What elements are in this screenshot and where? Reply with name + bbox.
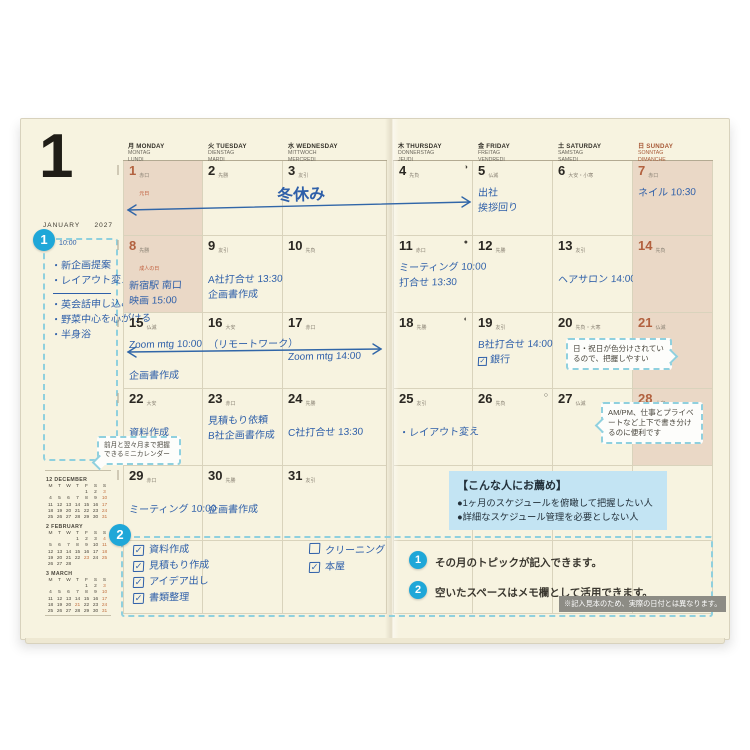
week-number-mark — [117, 393, 119, 403]
rokuyo-label: 大安 — [225, 325, 235, 331]
moon-phase-icon: ● — [464, 239, 468, 246]
sidebar-caption: JANUARY 2027 — [43, 222, 113, 229]
memo-item: ✓本屋 — [309, 559, 386, 576]
rokuyo-label: 大安・小寒 — [568, 173, 593, 179]
weekday-header-saturday: 土 SATURDAYSAMSTAGSAMEDI — [553, 139, 633, 161]
rokuyo-label: 先負 — [495, 401, 505, 407]
legend-badge-2: 2 — [409, 581, 427, 599]
rokuyo-label: 友引 — [305, 478, 315, 484]
checkbox-checked: ✓ — [133, 561, 145, 572]
day-number: 6 — [558, 164, 565, 177]
handwritten-entry: ネイル 10:30 — [638, 185, 710, 201]
memo-item: ✓資料作成 — [133, 542, 210, 559]
rokuyo-label: 大安 — [146, 401, 156, 407]
rokuyo-label: 先負 — [655, 248, 665, 254]
day-cell-4: 4先負◑ — [393, 161, 473, 236]
memo-item: ✓書類整理 — [133, 590, 210, 607]
day-cell-31: 31友引 — [283, 466, 387, 541]
recommend-item: ●1ヶ月のスケジュールを俯瞰して把握したい人 — [457, 496, 659, 510]
legend-text-1: その月のトピックが記入できます。 — [435, 555, 602, 570]
moon-phase-icon: ○ — [544, 392, 548, 399]
planner-page-photo: 1 JANUARY 2027 10:00 ・新企画提案・レイアウト変え・英会話申… — [20, 118, 730, 640]
rokuyo-label: 先勝 — [225, 478, 235, 484]
weekday-header-wednesday: 水 WEDNESDAYMITTWOCHMERCREDI — [283, 139, 387, 161]
annotation-badge-2: 2 — [109, 524, 131, 546]
day-number: 29 — [129, 469, 143, 482]
rokuyo-label: 赤口 — [225, 401, 235, 407]
day-cell-19: 19友引B社打合せ 14:00✓銀行 — [473, 313, 553, 389]
legend-badge-1: 1 — [409, 551, 427, 569]
sidebar-year-label: 2027 — [95, 222, 113, 229]
handwritten-entry: B社企画書作成 — [208, 428, 280, 444]
day-cell-11: 11赤口●ミーティング 10:00打合せ 13:30 — [393, 236, 473, 313]
day-number: 2 — [208, 164, 215, 177]
memo-checklist-2: クリーニング✓本屋 — [309, 543, 385, 576]
day-number: 5 — [478, 164, 485, 177]
handwritten-topic: ・レイアウト変え — [51, 273, 122, 289]
week-number-mark — [117, 470, 119, 480]
rokuyo-label: 仏滅 — [488, 173, 498, 179]
handwritten-entry: Zoom mtg 14:00 — [288, 348, 384, 365]
checkbox-checked: ✓ — [133, 545, 145, 556]
day-number: 7 — [638, 164, 645, 177]
handwritten-entry: C社打合せ 13:30 — [288, 424, 384, 441]
day-cell-17: 17赤口Zoom mtg 14:00 — [283, 313, 387, 389]
checkbox-unchecked — [309, 543, 321, 554]
checkbox-checked: ✓ — [133, 593, 145, 604]
moon-phase-icon: ◑ — [464, 164, 468, 171]
day-cell-5: 5仏滅出社挨拶回り — [473, 161, 553, 236]
checkbox-checked: ✓ — [309, 562, 321, 573]
day-number: 13 — [558, 239, 572, 252]
day-cell-18: 18先勝◐ — [393, 313, 473, 389]
callout-mini-calendar: 前月と翌々月まで把握できるミニカレンダー — [97, 436, 181, 465]
moon-phase-icon: ◐ — [464, 316, 468, 323]
rokuyo-label: 仏滅 — [655, 325, 665, 331]
rokuyo-label: 仏滅 — [575, 401, 585, 407]
mini-calendar-december: 12 DECEMBERMTWTFSS1234567891011121314151… — [46, 477, 112, 521]
day-number: 22 — [129, 392, 143, 405]
day-number: 31 — [288, 469, 302, 482]
handwritten-topic: ・野菜中心を心がける — [51, 312, 122, 328]
topic-divider — [53, 293, 111, 294]
day-cell-2: 2先勝 — [203, 161, 283, 236]
handwritten-entry: 見積もり依頼 — [208, 413, 280, 429]
memo-item: クリーニング — [309, 542, 386, 560]
handwritten-entry: Zoom mtg 10:00 — [129, 337, 200, 353]
rokuyo-label: 先勝 — [495, 248, 505, 254]
handwritten-entry: B社打合せ 14:00 — [478, 337, 550, 353]
handwritten-entry: 出社 — [478, 185, 550, 201]
day-number: 20 — [558, 316, 572, 329]
handwritten-entry: 映画 15:00 — [129, 293, 200, 309]
month-number: 1 — [39, 121, 71, 192]
callout-ampm: AM/PM、仕事とプライベートなど上下で書き分けるのに便利です — [601, 402, 703, 444]
handwritten-checkbox-checked: ✓ — [478, 357, 487, 366]
handwritten-entry: 企画書作成 — [208, 502, 280, 518]
handwritten-entry: 挨拶回り — [478, 200, 550, 216]
day-number: 1 — [129, 164, 136, 177]
mini-calendar-title: 3 MARCH — [46, 571, 112, 577]
handwritten-entry: 新宿駅 南口 — [129, 278, 200, 294]
rokuyo-label: 先勝 — [305, 401, 315, 407]
week-number-mark — [117, 317, 119, 327]
weekday-header-friday: 金 FRIDAYFREITAGVENDREDI — [473, 139, 553, 161]
topic-list: ・新企画提案・レイアウト変え・英会話申し込み・野菜中心を心がける・半身浴 — [51, 259, 121, 343]
handwritten-entry: ヘアサロン 14:00 — [558, 272, 630, 288]
day-number: 14 — [638, 239, 652, 252]
day-cell-23: 23赤口見積もり依頼B社企画書作成 — [203, 389, 283, 466]
day-number: 19 — [478, 316, 492, 329]
day-number: 11 — [399, 239, 413, 252]
rokuyo-label: 友引 — [218, 248, 228, 254]
handwritten-entry: ミーティング 10:00 — [399, 260, 470, 276]
day-cell-8: 8先勝成人の日新宿駅 南口映画 15:00 — [123, 236, 203, 313]
rokuyo-label: 先負・大寒 — [575, 325, 600, 331]
day-number: 9 — [208, 239, 215, 252]
day-number: 26 — [478, 392, 492, 405]
sidebar-divider-top — [45, 470, 111, 471]
rokuyo-label: 友引 — [495, 325, 505, 331]
memo-item: ✓見積もり作成 — [133, 558, 210, 575]
mini-calendar-title: 12 DECEMBER — [46, 477, 112, 483]
rokuyo-label: 赤口 — [146, 478, 156, 484]
handwritten-entry: 企画書作成 — [208, 287, 280, 303]
day-cell-29: 29赤口ミーティング 10:00 — [123, 466, 203, 541]
day-number: 17 — [288, 316, 302, 329]
handwritten-topic: ・半身浴 — [51, 327, 122, 343]
holiday-label: 元日 — [139, 191, 149, 197]
day-number: 12 — [478, 239, 492, 252]
day-cell-13: 13友引ヘアサロン 14:00 — [553, 236, 633, 313]
weekday-header-thursday: 木 THURSDAYDONNERSTAGJEUDI — [393, 139, 473, 161]
handwritten-time-note: 10:00 — [59, 236, 77, 251]
day-cell-30: 30先勝企画書作成 — [203, 466, 283, 541]
weekday-header-sunday: 日 SUNDAYSONNTAGDIMANCHE — [633, 139, 713, 161]
annotation-badge-1: 1 — [33, 229, 55, 251]
day-number: 15 — [129, 316, 143, 329]
day-number: 18 — [399, 316, 413, 329]
day-number: 25 — [399, 392, 413, 405]
handwritten-entry: ・レイアウト変え — [399, 425, 470, 441]
day-number: 27 — [558, 392, 572, 405]
checkbox-checked: ✓ — [133, 577, 145, 588]
handwritten-entry: 打合せ 13:30 — [399, 275, 470, 291]
day-number: 4 — [399, 164, 406, 177]
day-cell-12: 12先勝 — [473, 236, 553, 313]
day-cell-24: 24先勝C社打合せ 13:30 — [283, 389, 387, 466]
handwritten-entry: （リモートワーク） — [208, 337, 280, 353]
mini-calendar-march: 3 MARCHMTWTFSS12345678910111213141516171… — [46, 571, 112, 615]
day-cell-14: 14先負 — [633, 236, 713, 313]
memo-checklist-1: ✓資料作成✓見積もり作成✓アイデア出し✓書類整理 — [133, 543, 209, 607]
rokuyo-label: 先勝 — [416, 325, 426, 331]
day-number: 3 — [288, 164, 295, 177]
handwritten-winter-break: 冬休み — [277, 180, 326, 206]
rokuyo-label: 友引 — [416, 401, 426, 407]
day-number: 30 — [208, 469, 222, 482]
recommend-title: 【こんな人にお薦め】 — [457, 477, 659, 493]
holiday-label: 成人の日 — [139, 266, 159, 272]
weekday-header-tuesday: 火 TUESDAYDIENSTAGMARDI — [203, 139, 283, 161]
day-cell-16: 16大安（リモートワーク） — [203, 313, 283, 389]
rokuyo-label: 先負 — [409, 173, 419, 179]
week-number-mark — [117, 165, 119, 175]
day-number: 10 — [288, 239, 302, 252]
rokuyo-label: 友引 — [575, 248, 585, 254]
memo-item: ✓アイデア出し — [133, 574, 210, 591]
day-cell-1: 1赤口元日 — [123, 161, 203, 236]
handwritten-entry: ✓銀行 — [478, 352, 550, 368]
rokuyo-label: 赤口 — [416, 248, 426, 254]
rokuyo-label: 先勝 — [218, 173, 228, 179]
handwritten-topic: ・英会話申し込み — [51, 297, 122, 313]
day-cell-25: 25友引・レイアウト変え — [393, 389, 473, 466]
day-cell-6: 6大安・小寒 — [553, 161, 633, 236]
recommend-box: 【こんな人にお薦め】 ●1ヶ月のスケジュールを俯瞰して把握したい人 ●詳細なスケ… — [449, 471, 667, 530]
callout-holiday-color: 日・祝日が色分けされているので、把握しやすい — [566, 338, 672, 370]
rokuyo-label: 赤口 — [139, 173, 149, 179]
rokuyo-label: 先負 — [305, 248, 315, 254]
day-number: 24 — [288, 392, 302, 405]
day-cell-26: 26先負○ — [473, 389, 553, 466]
recommend-item: ●詳細なスケジュール管理を必要としない人 — [457, 510, 659, 524]
rokuyo-label: 先勝 — [139, 248, 149, 254]
day-cell-10: 10先負 — [283, 236, 387, 313]
mini-calendar-february: 2 FEBRUARYMTWTFSS12345678910111213141516… — [46, 524, 112, 568]
day-cell-7: 7赤口ネイル 10:30 — [633, 161, 713, 236]
day-number: 16 — [208, 316, 222, 329]
rokuyo-label: 赤口 — [648, 173, 658, 179]
day-number: 8 — [129, 239, 136, 252]
sample-disclaimer: ※記入見本のため、実際の日付とは異なります。 — [559, 596, 726, 612]
handwritten-entry: A社打合せ 13:30 — [208, 272, 280, 288]
week-number-mark — [117, 240, 119, 250]
handwritten-topic: ・新企画提案 — [51, 258, 122, 274]
day-cell-15: 15仏滅Zoom mtg 10:00企画書作成 — [123, 313, 203, 389]
rokuyo-label: 仏滅 — [146, 325, 156, 331]
weekday-header-monday: 月 MONDAYMONTAGLUNDI — [123, 139, 203, 161]
rokuyo-label: 友引 — [298, 173, 308, 179]
sidebar-divider-bottom — [45, 615, 111, 616]
mini-calendar-title: 2 FEBRUARY — [46, 524, 112, 530]
rokuyo-label: 赤口 — [305, 325, 315, 331]
handwritten-entry: ミーティング 10:00 — [129, 502, 200, 518]
day-cell-9: 9友引A社打合せ 13:30企画書作成 — [203, 236, 283, 313]
day-number: 21 — [638, 316, 652, 329]
handwritten-entry: 企画書作成 — [129, 368, 200, 384]
day-number: 23 — [208, 392, 222, 405]
sidebar-month-label: JANUARY — [43, 222, 80, 229]
